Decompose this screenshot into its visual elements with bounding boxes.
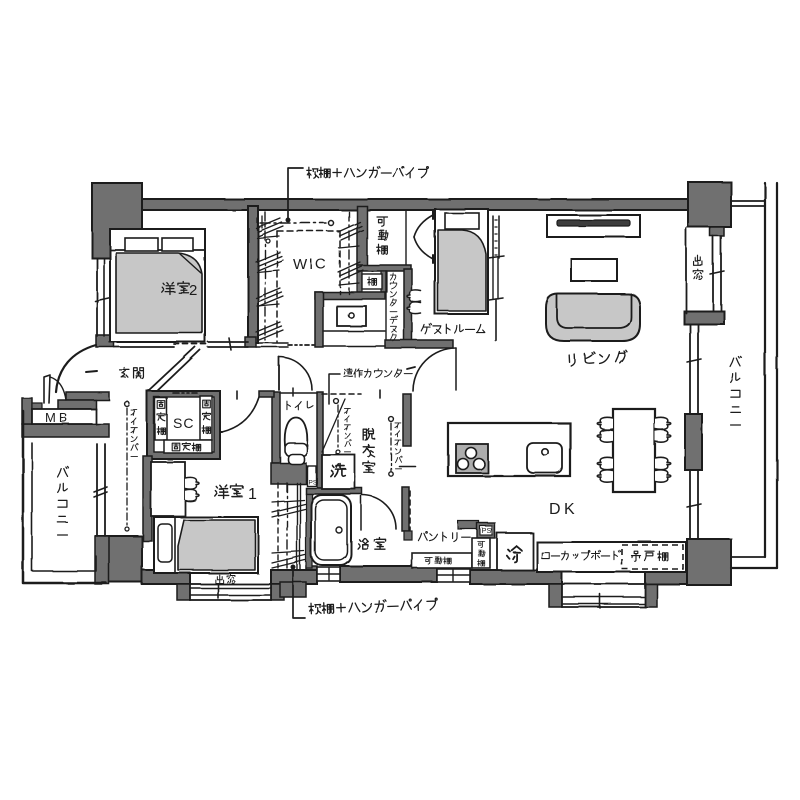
svg-text:PS: PS xyxy=(482,526,492,535)
svg-text:D: D xyxy=(549,501,561,518)
svg-text:PS: PS xyxy=(308,479,317,486)
svg-text:WIC: WIC xyxy=(293,256,328,273)
svg-text:2: 2 xyxy=(189,282,197,299)
svg-text:K: K xyxy=(564,501,575,518)
svg-text:SC: SC xyxy=(173,415,194,431)
svg-text:1: 1 xyxy=(248,486,257,503)
svg-text:MB: MB xyxy=(45,410,71,425)
